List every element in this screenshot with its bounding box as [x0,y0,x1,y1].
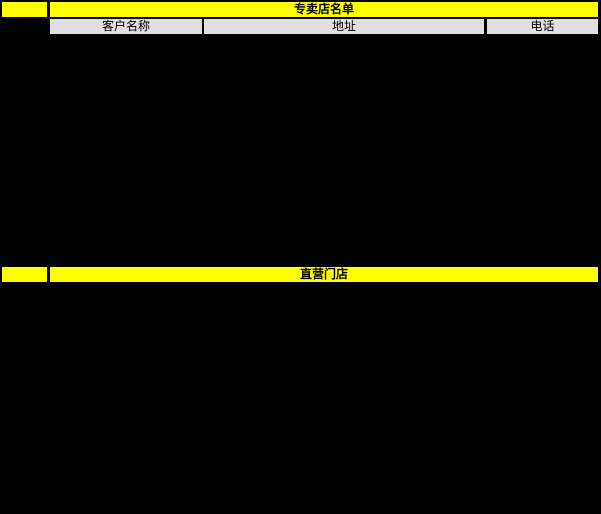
spreadsheet-canvas: { "sheet": { "section1": { "title": "专卖店… [0,0,601,514]
section1-corner-cell[interactable] [2,2,47,17]
section2-corner-cell[interactable] [2,267,47,282]
section2-title-cell[interactable]: 直营门店 [50,267,598,282]
section1-title-cell[interactable]: 专卖店名单 [50,2,598,17]
column-header-address[interactable]: 地址 [204,19,484,34]
column-header-phone[interactable]: 电话 [487,19,598,34]
column-header-customer-name[interactable]: 客户名称 [50,19,202,34]
